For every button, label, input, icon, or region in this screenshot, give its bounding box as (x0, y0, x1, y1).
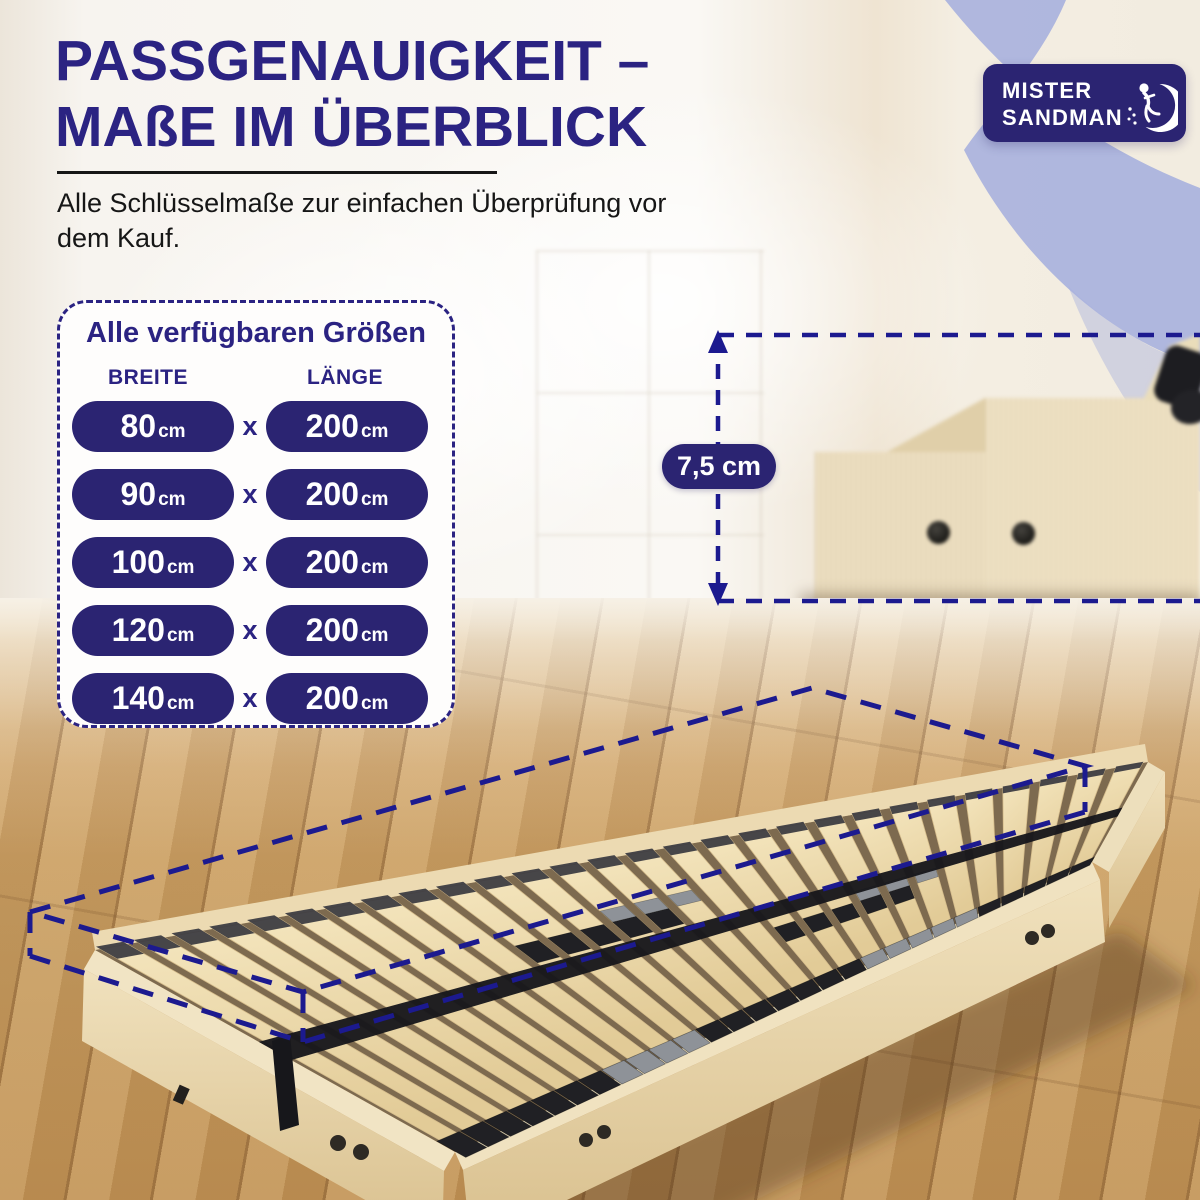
frame-screw (1025, 931, 1039, 945)
page-title: PASSGENAUIGKEIT – MAßE IM ÜBERBLICK (55, 28, 649, 160)
page-subtitle: Alle Schlüsselmaße zur einfachen Überprü… (57, 186, 707, 256)
times-separator: x (236, 479, 264, 510)
slatted-bed-base (82, 744, 1196, 1200)
height-dimension-lines (708, 330, 1200, 606)
size-row: 90cm x 200cm (72, 469, 452, 520)
size-rows: 80cm x 200cm 90cm x 200cm 100cm x 200cm … (60, 401, 452, 724)
length-pill: 200cm (266, 469, 428, 520)
frame-screw (1041, 924, 1055, 938)
logo-wordmark: MISTER SANDMAN (1002, 77, 1123, 131)
times-separator: x (236, 411, 264, 442)
panel-column-headers: BREITE LÄNGE (60, 366, 452, 390)
times-separator: x (236, 683, 264, 714)
panel-title: Alle verfügbaren Größen (60, 317, 452, 350)
title-underline (57, 171, 497, 174)
times-separator: x (236, 547, 264, 578)
size-row: 100cm x 200cm (72, 537, 452, 588)
times-separator: x (236, 615, 264, 646)
title-line-1: PASSGENAUIGKEIT – (55, 28, 649, 94)
length-pill: 200cm (266, 673, 428, 724)
logo-line-2: SANDMAN (1002, 104, 1123, 131)
frame-screw (597, 1125, 611, 1139)
sandman-moon-icon (1112, 70, 1178, 136)
width-pill: 90cm (72, 469, 234, 520)
width-pill: 100cm (72, 537, 234, 588)
title-line-2: MAßE IM ÜBERBLICK (55, 94, 649, 160)
height-dimension-badge: 7,5 cm (662, 444, 776, 489)
length-pill: 200cm (266, 401, 428, 452)
length-pill: 200cm (266, 605, 428, 656)
available-sizes-panel: Alle verfügbaren Größen BREITE LÄNGE 80c… (57, 300, 455, 728)
column-header-breite: BREITE (60, 366, 236, 390)
width-pill: 140cm (72, 673, 234, 724)
frame-screw (330, 1135, 346, 1151)
height-value: 7,5 cm (677, 451, 761, 482)
length-pill: 200cm (266, 537, 428, 588)
width-pill: 80cm (72, 401, 234, 452)
frame-screw (579, 1133, 593, 1147)
mister-sandman-logo: MISTER SANDMAN (983, 64, 1186, 142)
width-pill: 120cm (72, 605, 234, 656)
size-row: 140cm x 200cm (72, 673, 452, 724)
frame-screw (353, 1144, 369, 1160)
product-infographic: 7,5 cm PASSGENAUIGKEIT – MAßE IM ÜBERBLI… (0, 0, 1200, 1200)
column-header-laenge: LÄNGE (262, 366, 428, 390)
logo-line-1: MISTER (1002, 77, 1123, 104)
size-row: 120cm x 200cm (72, 605, 452, 656)
size-row: 80cm x 200cm (72, 401, 452, 452)
